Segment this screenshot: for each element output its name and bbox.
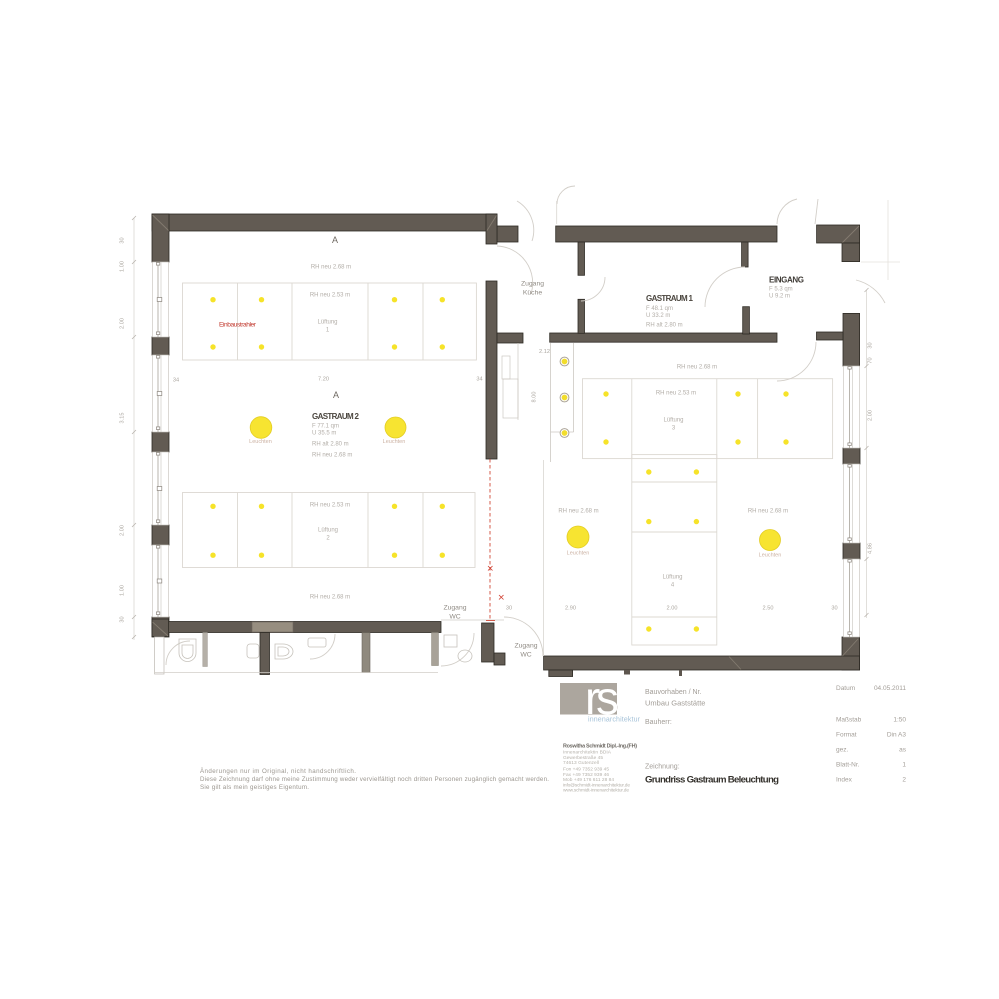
svg-text:Gewerbestraße 45: Gewerbestraße 45 [563,755,603,761]
svg-text:Innenarchitektin BDIA: Innenarchitektin BDIA [563,750,612,756]
svg-text:Lüftung: Lüftung [317,320,337,326]
svg-text:1: 1 [902,762,906,769]
svg-text:Bauherr:: Bauherr: [645,719,672,726]
svg-text:Zugang: Zugang [443,605,466,612]
svg-text:RH neu 2.68 m: RH neu 2.68 m [748,509,788,515]
svg-text:Zeichnung:: Zeichnung: [645,764,680,771]
svg-text:2.00: 2.00 [667,606,678,612]
svg-text:04.05.2011: 04.05.2011 [874,685,906,692]
svg-text:74613 Gutenzell: 74613 Gutenzell [563,760,599,766]
svg-text:RH alt 2.80 m: RH alt 2.80 m [646,323,683,329]
svg-text:Leuchten: Leuchten [383,439,406,445]
svg-text:gez.: gez. [836,747,848,754]
svg-text:www.schmidt-innenarchitektur.d: www.schmidt-innenarchitektur.de [563,788,629,794]
svg-text:Zugang: Zugang [514,643,537,650]
svg-text:RH neu 2.53 m: RH neu 2.53 m [310,293,350,299]
svg-text:Din A3: Din A3 [887,732,907,739]
svg-text:U 35.5 m: U 35.5 m [312,431,336,437]
svg-text:34: 34 [476,377,482,383]
svg-text:Roswitha Schmidt Dipl.-Ing.(FH: Roswitha Schmidt Dipl.-Ing.(FH) [563,744,637,750]
svg-text:A: A [333,390,339,400]
svg-text:RH neu 2.53 m: RH neu 2.53 m [310,503,350,509]
svg-text:Umbau Gaststätte: Umbau Gaststätte [645,699,705,708]
svg-text:GASTRAUM 2: GASTRAUM 2 [312,412,360,421]
svg-text:30: 30 [120,237,126,243]
svg-text:RH neu 2.68 m: RH neu 2.68 m [312,453,352,459]
svg-text:Datum: Datum [836,685,855,692]
svg-text:1.00: 1.00 [120,261,126,272]
svg-text:Lüftung: Lüftung [663,418,683,424]
svg-text:70: 70 [868,357,874,363]
svg-text:Blatt-Nr.: Blatt-Nr. [836,762,860,769]
svg-text:WC: WC [520,652,531,659]
svg-text:Leuchten: Leuchten [567,551,590,557]
svg-text:innenarchitektur: innenarchitektur [588,717,641,724]
svg-text:EINGANG: EINGANG [769,276,804,285]
svg-text:30: 30 [831,606,837,612]
svg-text:2.50: 2.50 [763,606,774,612]
svg-text:as: as [899,747,907,754]
svg-text:U 9.2 m: U 9.2 m [769,294,790,300]
svg-text:Lüftung: Lüftung [662,575,682,581]
svg-text:Lüftung: Lüftung [318,528,338,534]
svg-text:RH alt 2.80 m: RH alt 2.80 m [312,442,349,448]
svg-text:Grundriss Gastraum Beleuchtung: Grundriss Gastraum Beleuchtung [645,775,779,786]
svg-text:RH neu 2.68 m: RH neu 2.68 m [311,265,351,271]
svg-text:Format: Format [836,732,857,739]
svg-text:34: 34 [173,378,179,384]
svg-text:1.00: 1.00 [120,585,126,596]
svg-text:3.15: 3.15 [120,413,126,424]
svg-text:2.90: 2.90 [565,606,576,612]
svg-text:RH neu 2.53 m: RH neu 2.53 m [656,391,696,397]
svg-text:4.86: 4.86 [868,543,874,554]
svg-text:30: 30 [120,616,126,622]
svg-text:7.20: 7.20 [318,377,329,383]
svg-text:Leuchten: Leuchten [759,553,782,559]
svg-text:RH neu 2.68 m: RH neu 2.68 m [677,365,717,371]
svg-text:Fax +49 7352 939 46: Fax +49 7352 939 46 [563,772,609,778]
svg-text:Einbaustrahler: Einbaustrahler [219,322,257,329]
svg-text:WC: WC [449,614,460,621]
svg-text:Sie gilt als mein geistiges Ei: Sie gilt als mein geistiges Eigentum. [200,784,309,791]
svg-text:GASTRAUM 1: GASTRAUM 1 [646,294,694,303]
svg-text:8.00: 8.00 [532,392,538,403]
svg-text:F 77.1 qm: F 77.1 qm [312,424,339,430]
svg-text:A: A [332,235,338,245]
svg-text:Zugang: Zugang [521,281,544,288]
svg-text:2.00: 2.00 [120,318,126,329]
svg-text:RH neu 2.68 m: RH neu 2.68 m [558,509,598,515]
svg-text:Diese Zeichnung darf ohne mein: Diese Zeichnung darf ohne meine Zustimmu… [200,776,549,783]
svg-text:info@schmidt-innenarchitektur.: info@schmidt-innenarchitektur.de [563,782,630,788]
svg-text:Bauvorhaben / Nr.: Bauvorhaben / Nr. [645,689,701,696]
svg-text:30: 30 [868,342,874,348]
svg-text:Küche: Küche [523,290,542,297]
svg-text:Leuchten: Leuchten [249,439,272,445]
svg-text:Maßstab: Maßstab [836,717,862,724]
svg-text:2.00: 2.00 [120,525,126,536]
svg-text:2.12: 2.12 [539,349,550,355]
svg-text:F 5.3 qm: F 5.3 qm [769,287,793,293]
svg-text:1:50: 1:50 [893,717,906,724]
svg-text:Index: Index [836,777,853,784]
svg-text:Fon +49 7352 939 45: Fon +49 7352 939 45 [563,767,609,773]
svg-text:30: 30 [506,606,512,612]
svg-text:2: 2 [902,777,906,784]
svg-text:F 48.1 qm: F 48.1 qm [646,306,673,312]
svg-text:Mob +49 176 611 28 84: Mob +49 176 611 28 84 [563,777,614,783]
svg-text:Änderungen nur im Original, ni: Änderungen nur im Original, nicht handsc… [200,768,356,775]
svg-text:RH neu 2.68 m: RH neu 2.68 m [310,595,350,601]
svg-text:U 33.2 m: U 33.2 m [646,313,670,319]
svg-text:2.00: 2.00 [868,410,874,421]
